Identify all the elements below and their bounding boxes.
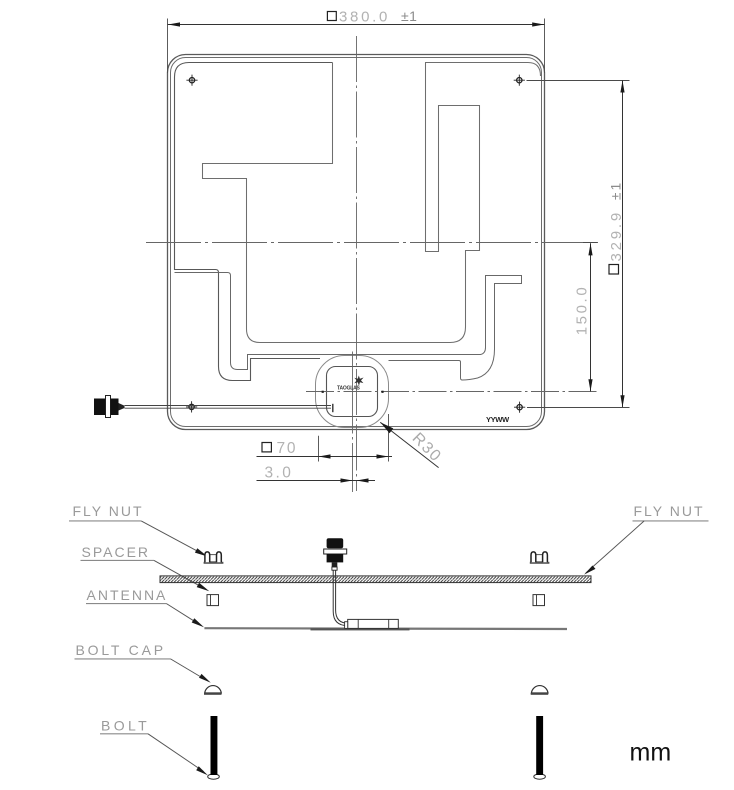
svg-text:FLY NUT: FLY NUT [73,503,144,519]
svg-text:70: 70 [277,440,298,457]
svg-text:329.9: 329.9 [608,210,625,262]
svg-text:SPACER: SPACER [82,544,151,560]
svg-text:BOLT CAP: BOLT CAP [76,642,166,658]
svg-text:TAOGLAS: TAOGLAS [337,386,361,392]
svg-text:±1: ±1 [401,8,417,24]
svg-text:3.0: 3.0 [265,465,294,482]
svg-text:FLY NUT: FLY NUT [634,503,705,519]
svg-text:±1: ±1 [608,181,623,200]
svg-text:mm: mm [630,739,672,767]
svg-text:150.0: 150.0 [574,285,591,336]
svg-text:380.0: 380.0 [339,8,390,25]
svg-text:YYWW: YYWW [486,415,510,424]
svg-text:ANTENNA: ANTENNA [87,587,168,603]
svg-text:BOLT: BOLT [101,718,150,734]
